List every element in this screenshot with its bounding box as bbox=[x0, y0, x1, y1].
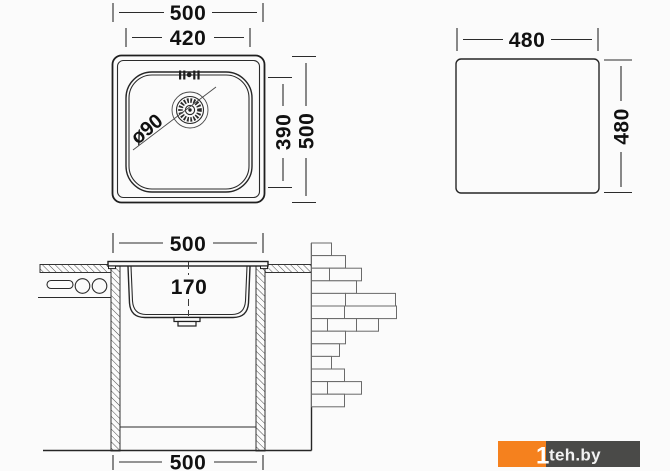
cutout-outline bbox=[456, 59, 599, 193]
drawer-handle-icon bbox=[47, 281, 73, 289]
cabinet-post-left bbox=[111, 265, 120, 451]
dim-section-depth: 170 bbox=[171, 262, 208, 316]
dim-cutout-height: 480 bbox=[604, 60, 634, 193]
watermark-digit: 1 bbox=[536, 443, 549, 470]
dim-section-bottom-width: 500 bbox=[113, 452, 263, 471]
dim-label-cutout-width: 480 bbox=[509, 29, 546, 52]
knob-left-icon bbox=[75, 279, 90, 294]
sink-dimension-drawing: 500 420 bbox=[0, 0, 670, 471]
sink-top-view: 500 420 bbox=[113, 2, 319, 203]
cabinet-front-details bbox=[38, 279, 111, 298]
dim-label-top-outer-height: 500 bbox=[296, 113, 319, 150]
dim-section-top-width: 500 bbox=[113, 233, 263, 256]
dim-cutout-width: 480 bbox=[457, 28, 598, 52]
brick-wall-pattern bbox=[312, 243, 397, 407]
watermark-site-text: teh.by bbox=[549, 446, 601, 465]
dim-label-top-inner-height: 390 bbox=[273, 114, 296, 151]
cutout-view: 480 480 bbox=[456, 28, 634, 193]
dim-label-section-bottom-width: 500 bbox=[170, 452, 207, 471]
dim-label-drain-diameter: ø90 bbox=[127, 110, 168, 149]
dim-label-top-inner-width: 420 bbox=[170, 27, 207, 50]
dim-label-top-outer-width: 500 bbox=[170, 2, 207, 25]
dim-label-section-top-width: 500 bbox=[170, 233, 207, 256]
dim-top-inner-height: 390 bbox=[268, 78, 296, 188]
knob-right-icon bbox=[92, 279, 107, 294]
dim-top-inner-width: 420 bbox=[126, 27, 250, 50]
dim-label-cutout-height: 480 bbox=[611, 108, 634, 145]
technical-drawing-svg: 500 420 bbox=[0, 0, 670, 471]
drain-outlet bbox=[174, 318, 200, 327]
countertop-right bbox=[265, 265, 312, 273]
cabinet-post-right bbox=[256, 265, 265, 451]
dim-label-section-depth: 170 bbox=[171, 276, 208, 299]
dim-top-outer-width: 500 bbox=[113, 2, 263, 25]
section-view: 500 170 bbox=[38, 233, 397, 471]
countertop-left bbox=[40, 265, 111, 273]
watermark-logo: 1 teh.by bbox=[498, 441, 640, 470]
dim-top-outer-height: 500 bbox=[292, 57, 319, 203]
